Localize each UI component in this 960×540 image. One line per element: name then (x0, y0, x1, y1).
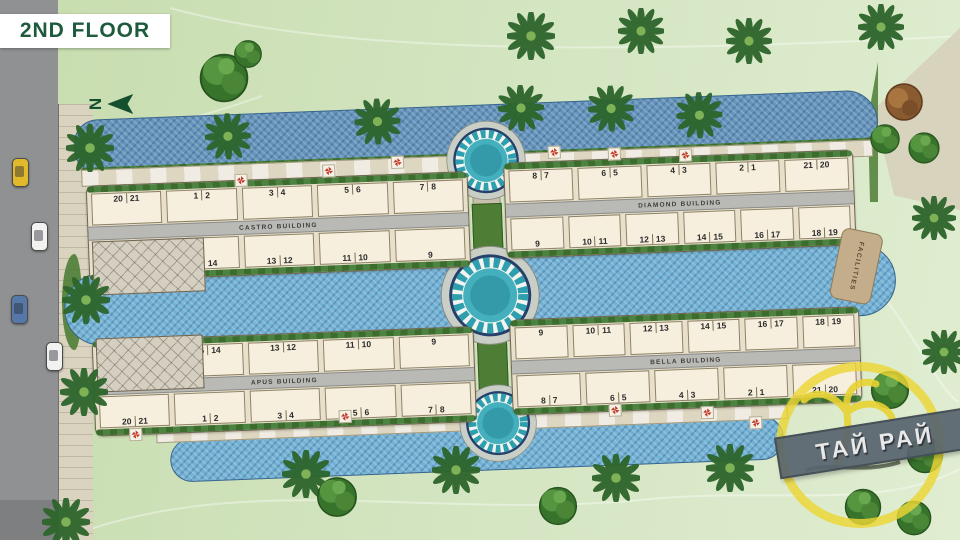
unit-number: 7 (549, 395, 561, 405)
unit-cell: 1415 (687, 319, 741, 353)
unit-cell: 1011 (572, 323, 626, 357)
palm-tree-icon (354, 98, 402, 146)
unit-number: 11 (342, 339, 357, 350)
unit-number: 6 (598, 168, 609, 178)
unit-number: 3 (266, 187, 277, 197)
unit-number: 21 (134, 415, 151, 426)
unit-number: 13 (264, 255, 280, 266)
compass-north-label: N (86, 98, 106, 110)
unit-cell: 87 (508, 168, 573, 202)
palm-tree-icon (497, 84, 545, 132)
unit-cell: 65 (585, 370, 650, 404)
unit-number: 1 (755, 387, 767, 397)
pinwheel-icon (391, 156, 404, 169)
unit-number: 8 (529, 170, 540, 180)
unit-cell: 1617 (744, 317, 798, 351)
unit-cell: 12 (166, 188, 238, 223)
round-tree-icon (536, 484, 580, 528)
red-tree-icon (884, 82, 924, 122)
site-plan-page: 202112345678 CASTRO BUILDING 17161514131… (0, 0, 960, 540)
unit-number: 4 (667, 165, 678, 175)
unit-number: 4 (676, 390, 687, 400)
palm-tree-icon (587, 85, 635, 133)
unit-number: 1 (190, 190, 201, 200)
unit-number: 10 (354, 252, 371, 263)
unit-cell: 2021 (91, 191, 163, 226)
building-name-label: APUS BUILDING (251, 377, 318, 387)
palm-tree-icon (726, 18, 772, 64)
unit-number: 6 (607, 393, 618, 403)
unit-cell: 56 (325, 385, 397, 420)
unit-cell: 1011 (568, 214, 622, 248)
unit-number: 3 (686, 389, 698, 399)
unit-number: 8 (436, 404, 448, 414)
building-name-label: DIAMOND BUILDING (638, 199, 722, 209)
unit-number: 12 (282, 342, 299, 353)
unit-cell: 1617 (740, 208, 794, 242)
unit-cell: 9 (394, 227, 466, 262)
unit-number: 18 (809, 227, 825, 238)
car-blue (11, 295, 28, 324)
unit-number: 10 (582, 325, 598, 336)
unit-number: 11 (594, 236, 610, 247)
unit-number: 9 (532, 238, 543, 248)
palm-tree-icon (922, 330, 960, 374)
unit-cell: 9 (514, 325, 568, 359)
unit-number: 7 (540, 170, 552, 180)
unit-number: 14 (697, 321, 713, 332)
unit-number: 9 (425, 249, 436, 259)
unit-cell: 21 (723, 365, 788, 399)
unit-number: 16 (751, 230, 767, 241)
unit-number: 20 (119, 416, 135, 427)
unit-number: 3 (274, 410, 285, 420)
palm-tree-icon (858, 4, 904, 50)
unit-cell: 2021 (99, 394, 171, 429)
unit-number: 8 (538, 395, 549, 405)
unit-cell: 78 (392, 179, 464, 214)
unit-number: 11 (339, 253, 354, 264)
unit-number: 10 (579, 236, 595, 247)
unit-cell: 12 (174, 391, 246, 426)
unit-cell: 1415 (683, 210, 737, 244)
unit-number: 21 (800, 160, 816, 171)
unit-number: 15 (709, 231, 726, 242)
round-tree-icon (232, 38, 264, 70)
unit-number: 5 (341, 185, 352, 195)
unit-cell: 1213 (625, 212, 679, 246)
pinwheel-icon (322, 164, 335, 177)
unit-number: 10 (357, 339, 374, 350)
unit-number: 14 (204, 258, 221, 269)
compass: N (90, 94, 133, 114)
unit-number: 15 (713, 320, 730, 331)
palm-tree-icon (62, 276, 110, 324)
unit-number: 2 (210, 413, 222, 423)
unit-number: 19 (828, 316, 845, 327)
unit-number: 12 (640, 323, 656, 334)
unit-number: 2 (736, 162, 747, 172)
unit-number: 5 (618, 392, 630, 402)
unit-number: 6 (360, 407, 372, 417)
pinwheel-icon (701, 406, 714, 419)
unit-cell: 56 (317, 182, 389, 217)
unit-cell: 2120 (784, 157, 849, 191)
palm-tree-icon (706, 444, 754, 492)
palm-tree-icon (507, 12, 555, 60)
unit-number: 4 (276, 187, 288, 197)
unit-cell: 1213 (629, 321, 683, 355)
pinwheel-icon (129, 428, 142, 441)
unit-number: 13 (652, 233, 669, 244)
unit-number: 3 (678, 165, 690, 175)
palm-tree-icon (42, 498, 90, 540)
round-tree-icon (906, 130, 942, 166)
apus-roof-deck (96, 334, 205, 392)
compass-arrow-icon (107, 94, 133, 114)
unit-number: 7 (416, 182, 427, 192)
unit-number: 5 (609, 167, 621, 177)
car-white (31, 222, 48, 251)
palm-tree-icon (676, 91, 724, 139)
unit-number: 14 (694, 232, 710, 243)
pinwheel-icon (749, 416, 762, 429)
pinwheel-icon (548, 146, 561, 159)
palm-tree-icon (618, 8, 664, 54)
unit-number: 2 (201, 190, 213, 200)
unit-number: 17 (770, 318, 787, 329)
unit-number: 20 (110, 193, 126, 204)
unit-number: 12 (279, 255, 296, 266)
unit-number: 16 (755, 319, 771, 330)
facilities-label: FACILITIES (848, 241, 865, 291)
unit-cell: 9 (398, 334, 470, 369)
unit-number: 17 (767, 229, 784, 240)
round-tree-icon (314, 474, 360, 520)
pinwheel-icon (608, 147, 621, 160)
unit-number: 7 (425, 405, 436, 415)
unit-cell: 65 (577, 165, 642, 199)
palm-tree-icon (204, 112, 252, 160)
car-yellow (12, 158, 29, 187)
building-name-label: CASTRO BUILDING (239, 221, 318, 231)
unit-cell: 34 (249, 388, 321, 423)
unit-number: 8 (427, 181, 439, 191)
pinwheel-icon (679, 148, 692, 161)
diamond-building: 876543212120 DIAMOND BUILDING 9101112131… (503, 149, 856, 258)
unit-cell: 1110 (323, 337, 395, 372)
unit-cell: 1312 (248, 340, 320, 375)
unit-number: 4 (285, 410, 297, 420)
unit-cell: 87 (516, 373, 581, 407)
unit-number: 1 (199, 413, 210, 423)
unit-cell: 43 (654, 368, 719, 402)
round-tree-icon (868, 122, 902, 156)
pinwheel-icon (234, 174, 247, 187)
palm-tree-icon (592, 454, 640, 502)
floor-title-box: 2ND FLOOR (0, 14, 170, 48)
unit-number: 9 (428, 336, 439, 346)
unit-number: 19 (824, 227, 841, 238)
unit-cell: 78 (400, 382, 472, 417)
unit-number: 6 (352, 184, 364, 194)
palm-tree-icon (60, 368, 108, 416)
unit-number: 20 (816, 159, 833, 170)
unit-cell: 1819 (802, 314, 856, 348)
palm-tree-icon (432, 446, 480, 494)
unit-number: 14 (207, 345, 224, 356)
palm-tree-icon (912, 196, 956, 240)
unit-number: 21 (126, 193, 143, 204)
unit-cell: 1312 (244, 233, 316, 268)
unit-number: 11 (598, 325, 614, 336)
unit-number: 2 (745, 387, 756, 397)
pinwheel-icon (608, 403, 621, 416)
floor-title: 2ND FLOOR (20, 19, 150, 43)
palm-tree-icon (66, 124, 114, 172)
unit-number: 18 (812, 316, 828, 327)
unit-number: 1 (747, 162, 759, 172)
unit-cell: 9 (510, 216, 564, 250)
unit-cell: 21 (715, 160, 780, 194)
road (0, 0, 58, 540)
unit-number: 9 (535, 327, 546, 337)
pinwheel-icon (338, 410, 351, 423)
unit-number: 13 (267, 342, 283, 353)
unit-cell: 43 (646, 163, 711, 197)
unit-cell: 34 (242, 185, 314, 220)
unit-cell: 1110 (319, 230, 391, 265)
building-name-label: BELLA BUILDING (650, 356, 722, 366)
unit-number: 12 (636, 234, 652, 245)
unit-number: 13 (655, 322, 672, 333)
